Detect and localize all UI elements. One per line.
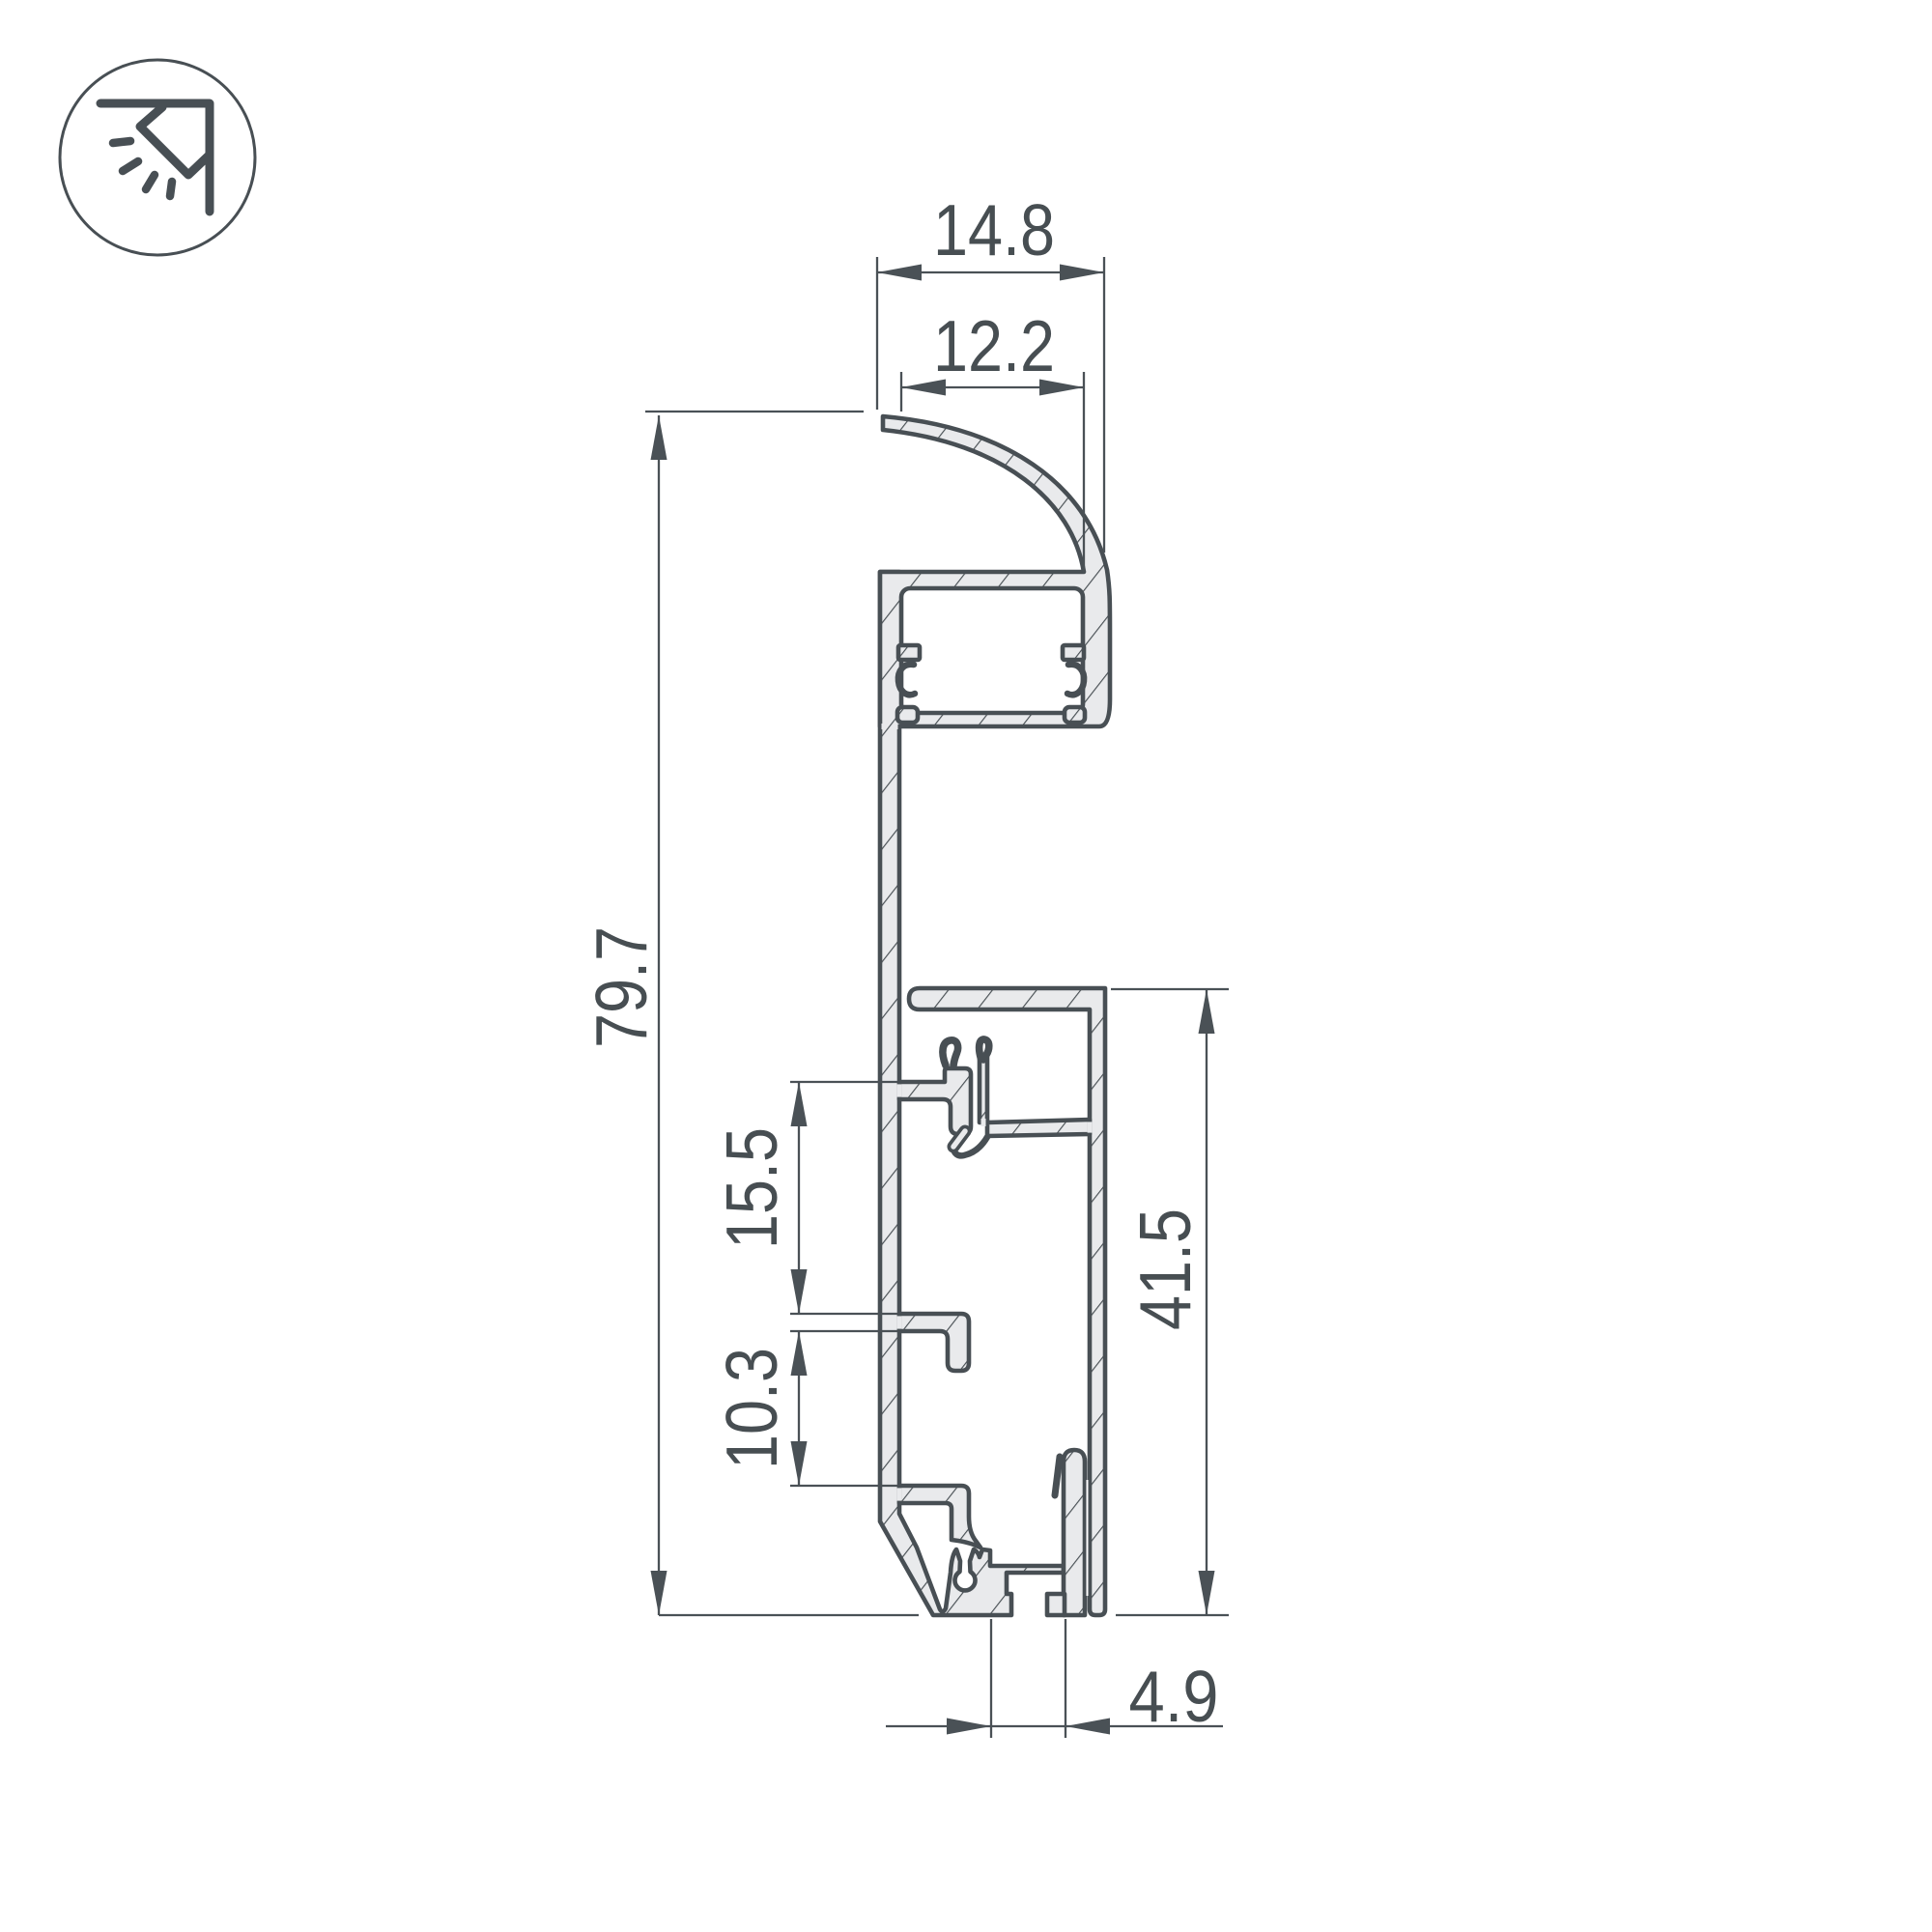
svg-text:14.8: 14.8 [933,189,1055,270]
svg-text:10.3: 10.3 [711,1348,792,1469]
svg-text:41.5: 41.5 [1124,1208,1206,1330]
svg-text:79.7: 79.7 [581,926,662,1048]
svg-text:12.2: 12.2 [933,305,1055,386]
svg-text:15.5: 15.5 [711,1127,792,1249]
svg-text:4.9: 4.9 [1129,1656,1219,1737]
